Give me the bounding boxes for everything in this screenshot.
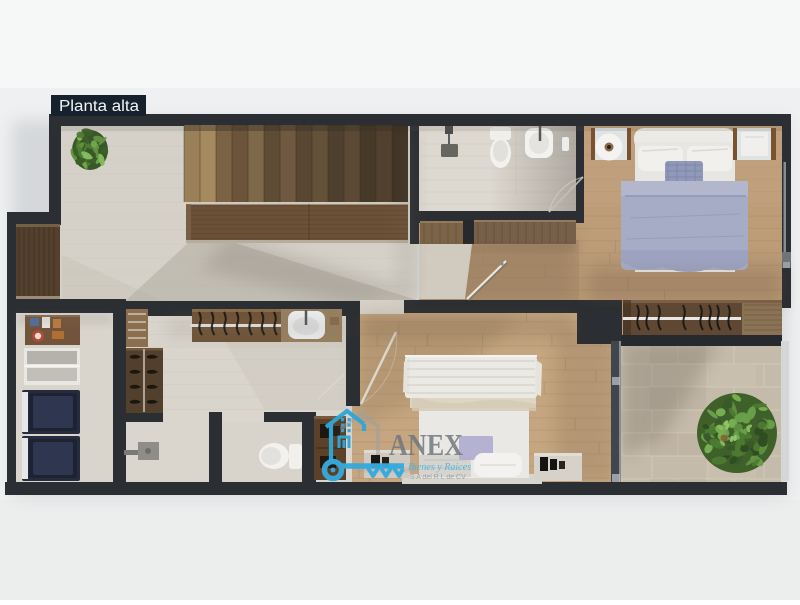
svg-text:Planta alta: Planta alta <box>59 98 139 115</box>
svg-text:Bienes y Raices: Bienes y Raices <box>408 462 471 473</box>
svg-text:ANEX: ANEX <box>389 427 464 462</box>
svg-text:S A del R L de CV: S A del R L de CV <box>410 474 466 481</box>
